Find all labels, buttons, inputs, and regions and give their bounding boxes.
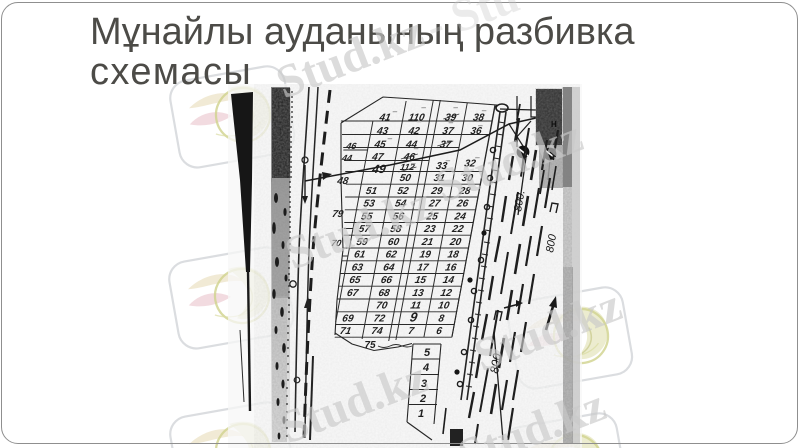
svg-text:Stud.kz: Stud.kz (269, 6, 430, 109)
svg-text:- Stu: - Stu (418, 0, 526, 53)
svg-text:Stud.kz: Stud.kz (451, 379, 612, 448)
svg-text:Stud.kz: Stud.kz (273, 351, 434, 448)
svg-text:Stud.kz: Stud.kz (278, 177, 439, 280)
svg-text:Stud.kz: Stud.kz (428, 110, 589, 213)
svg-text:Stud.kz: Stud.kz (467, 279, 628, 382)
